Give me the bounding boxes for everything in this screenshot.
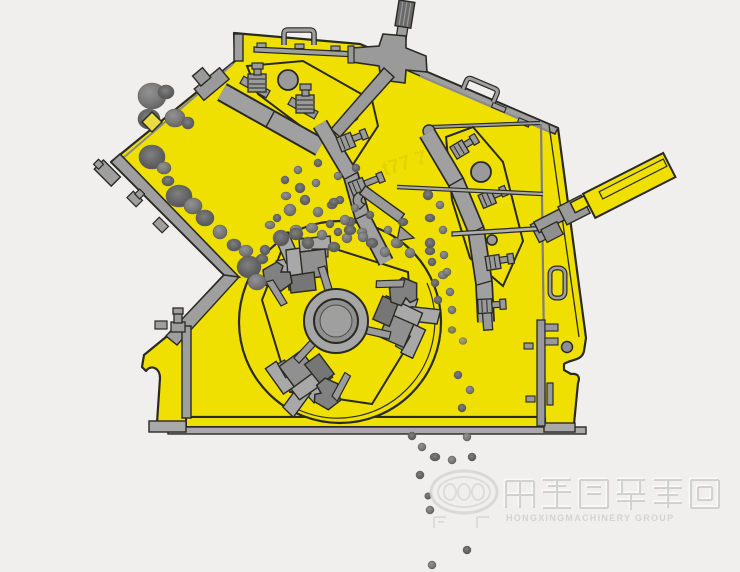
svg-text:HONGXINGMACHINERY GROUP: HONGXINGMACHINERY GROUP: [506, 513, 674, 523]
